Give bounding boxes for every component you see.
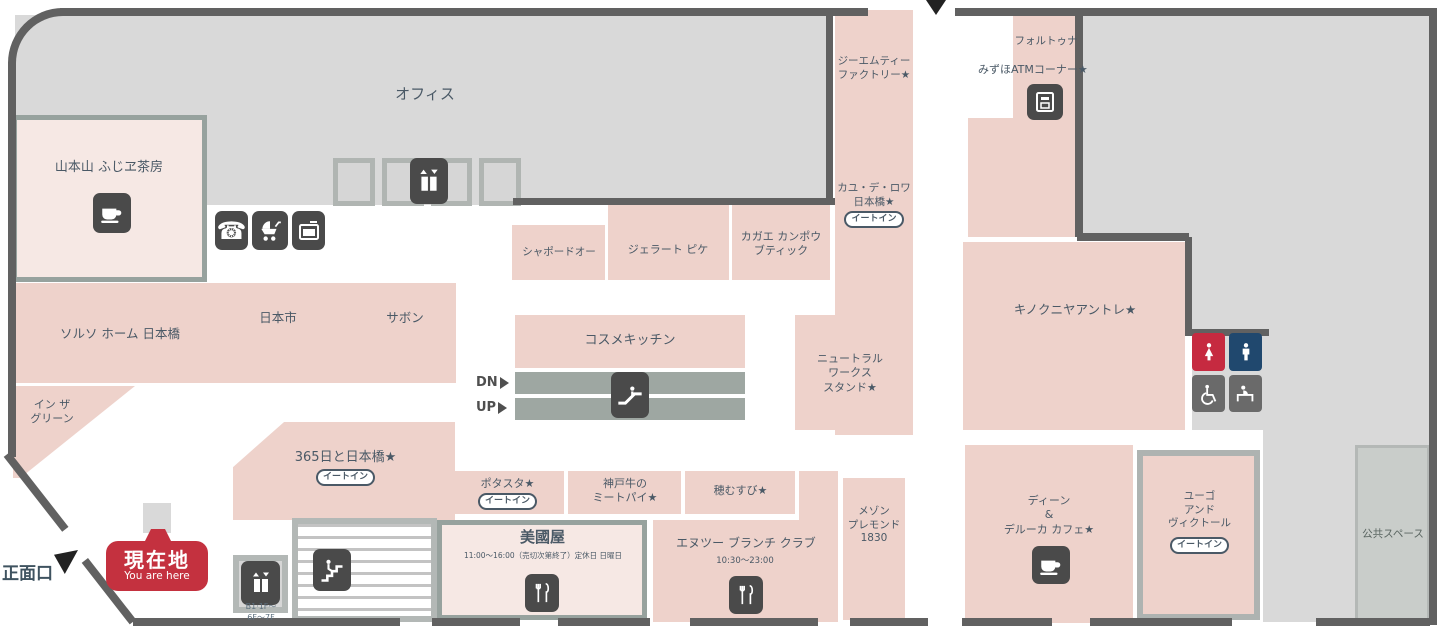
cafe-cup-icon — [93, 193, 131, 233]
shop-label-yamamotoyama: 山本山 ふじヱ茶房 — [24, 160, 194, 177]
shop-label-gelato-pique: ジェラート ピケ — [612, 243, 724, 257]
wall-bottom-seg — [690, 618, 818, 626]
elevator-floors-label: B1·1F～ 6F～7F — [224, 601, 298, 623]
shop-label-kinokuniya: キノクニヤアントレ★ — [1000, 302, 1150, 318]
escalator-up-label: UP — [476, 400, 507, 415]
shop-label-in-the-green: イン ザ グリーン — [16, 398, 88, 427]
restaurant-icon — [729, 576, 763, 614]
shop-label-hugo-victor: ユーゴ アンド ヴィクトール イートイン — [1152, 490, 1247, 554]
wall-kinokuniya-right — [1185, 237, 1192, 333]
shop-label-text: ポタスタ★ — [481, 477, 535, 491]
shop-label-neutralworks: ニュートラル ワークス スタンド★ — [800, 352, 900, 395]
shop-label-homusubi: 穂むすび★ — [688, 484, 793, 498]
wall-bottom-seg — [962, 618, 1052, 626]
right-triangle-icon — [498, 402, 507, 414]
toilet-female-icon — [1192, 333, 1225, 371]
dn-text: DN — [476, 375, 498, 390]
shop-hours-mikuniya: 11:00～16:00（売切次第終了）定休日 日曜日 — [443, 551, 643, 561]
shop-label-chapeau: シャポードオー — [514, 246, 604, 260]
shop-label-solso-home: ソルソ ホーム 日本橋 — [40, 326, 200, 342]
shop-label-n2-brunch: エヌツー ブランチ クラブ — [658, 536, 834, 552]
restaurant-icon — [525, 574, 559, 612]
right-zone-top — [1083, 15, 1430, 237]
you-are-here-badge: 現在地 You are here — [106, 541, 208, 591]
shop-label-text: カユ・デ・ロワ 日本橋★ — [837, 182, 911, 209]
elevator-shaft — [333, 158, 375, 206]
shop-label-dean-deluca: ディーン & デルーカ カフェ★ — [999, 494, 1099, 537]
wall-office-bottom — [513, 198, 835, 205]
wall-corner-topleft — [8, 8, 128, 128]
wall-bottom-seg — [432, 618, 520, 626]
wall-bottom-seg — [558, 618, 650, 626]
shop-area-maison-bremond[interactable] — [843, 478, 905, 620]
eat-in-badge: イートイン — [316, 469, 375, 486]
shop-label-text: 365日と日本橋★ — [295, 450, 396, 467]
shop-label-text: ユーゴ アンド ヴィクトール — [1168, 490, 1231, 531]
shop-label-kagae: カガエ カンポウ ブティック — [732, 230, 830, 259]
wall-strip-left — [826, 15, 833, 205]
toilet-wheelchair-icon — [1192, 375, 1225, 412]
shop-label-cosme-kitchen: コスメキッチン — [560, 333, 700, 350]
you-are-here-en: You are here — [124, 571, 189, 583]
wall-kinokuniya-top — [1077, 233, 1189, 241]
shop-label-sabon: サボン — [365, 310, 445, 326]
cafe-cup-icon — [1032, 546, 1070, 584]
shop-label-fortuna: フォルトゥナ — [1008, 35, 1084, 49]
shop-label-nihonichi: 日本市 — [233, 310, 323, 326]
shop-area-n2-upper[interactable] — [799, 471, 838, 520]
escalator-icon — [611, 372, 649, 418]
wall-right — [1429, 8, 1437, 625]
you-are-here-jp: 現在地 — [124, 549, 190, 571]
baby-changing-icon — [1229, 375, 1262, 412]
elevator-icon — [241, 561, 280, 605]
top-entrance-arrow-icon — [926, 0, 946, 15]
wall-bottom-seg — [1316, 618, 1430, 626]
atm-corner-label: みずほATMコーナー★ — [978, 63, 1118, 77]
floor-map: ☎ 現在地 You are here オフィス 山本山 ふじヱ茶房 ソルソ ホー… — [0, 0, 1450, 635]
shop-label-potasta: ポタスタ★ イートイン — [455, 477, 560, 510]
wall-top-right-span — [955, 8, 1437, 16]
shop-area-gelato-pique[interactable] — [608, 203, 729, 280]
right-triangle-icon — [500, 377, 509, 389]
wall-bottom-seg — [850, 618, 928, 626]
atm-icon — [1027, 84, 1063, 120]
shop-label-gmt-factory: ジーエムティー ファクトリー★ — [831, 55, 917, 82]
coin-locker-icon — [292, 211, 325, 250]
front-entrance-label: 正面口 — [2, 563, 72, 585]
shop-label-kobe-meat-pie: 神戸牛の ミートパイ★ — [570, 477, 680, 506]
shop-label-mikuniya: 美國屋 — [460, 528, 625, 548]
escalator-dn-label: DN — [476, 375, 509, 390]
you-are-here-anchor — [143, 503, 171, 533]
toilet-male-icon — [1229, 333, 1262, 371]
shop-area-kinokuniya[interactable] — [963, 242, 1185, 430]
wall-top-left-span — [60, 8, 868, 16]
shop-label-cayu-de-roi: カユ・デ・ロワ 日本橋★ イートイン — [831, 182, 917, 228]
eat-in-badge: イートイン — [844, 211, 903, 228]
up-text: UP — [476, 400, 496, 415]
atm-corner-area[interactable] — [968, 118, 1078, 237]
wall-left — [8, 62, 16, 457]
shop-hours-n2: 10:30～23:00 — [700, 556, 790, 567]
shop-label-maison-bremond: メゾン プレモンド 1830 — [841, 505, 907, 546]
stairs-icon — [313, 549, 351, 591]
shop-label-365-nihonbashi: 365日と日本橋★ イートイン — [263, 450, 428, 486]
eat-in-badge: イートイン — [478, 493, 537, 510]
wall-bottom-seg — [1090, 618, 1232, 626]
eat-in-badge: イートイン — [1170, 537, 1229, 554]
stroller-icon — [252, 211, 288, 250]
office-label: オフィス — [345, 85, 505, 105]
phone-icon: ☎ — [215, 211, 248, 250]
elevator-icon — [410, 158, 448, 204]
public-space-label: 公共スペース — [1356, 528, 1430, 542]
